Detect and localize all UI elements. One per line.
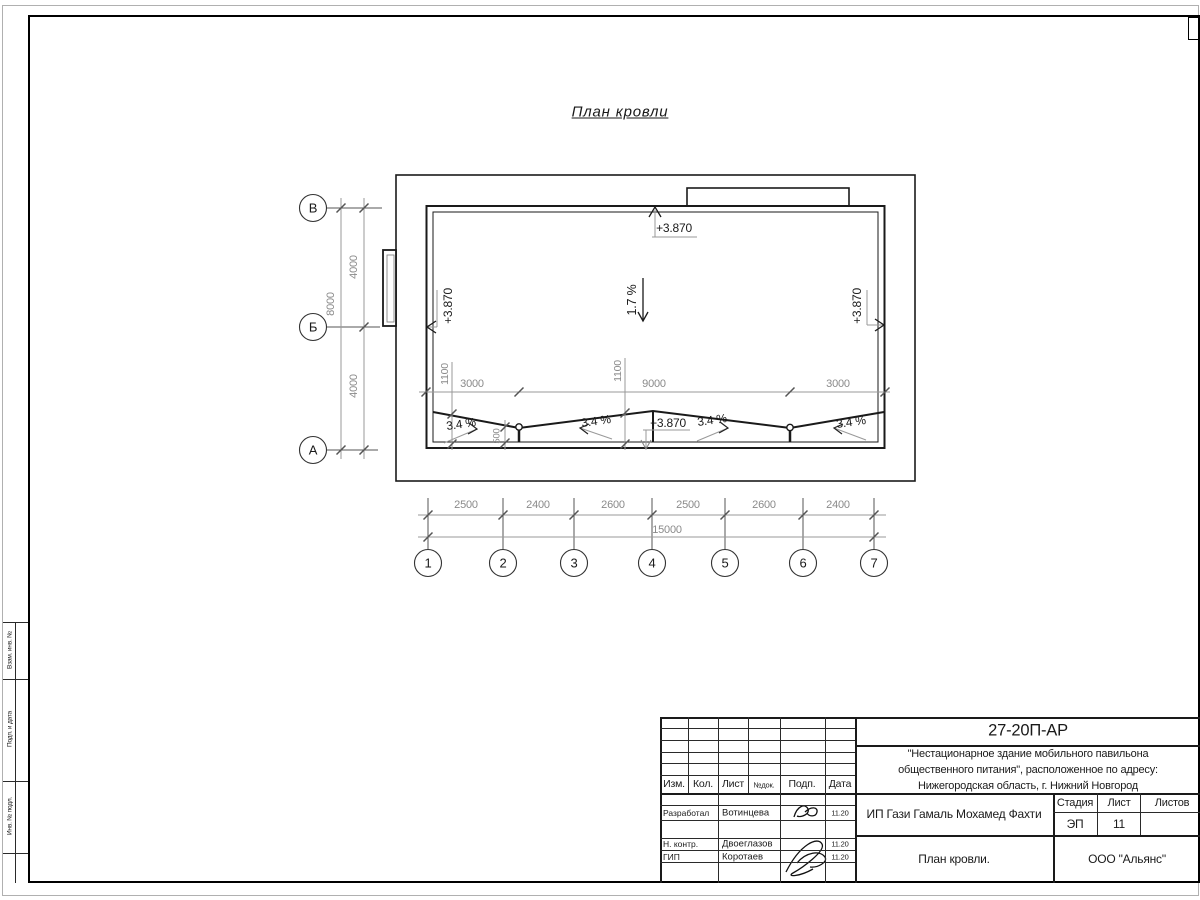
name-developer: Вотинцева [722, 808, 769, 819]
sheet-number: 11 [1113, 817, 1125, 831]
dim-bottom-segment: 2400 [826, 499, 850, 511]
titleblock-line [825, 717, 826, 883]
dim-inner-offset: 1100 [612, 360, 624, 382]
col-header-podp: Подп. [789, 778, 816, 790]
signature-developer [794, 806, 817, 817]
dim-bottom-segment: 2500 [676, 499, 700, 511]
dim-bottom-segment: 2600 [752, 499, 776, 511]
sheets-header: Листов [1155, 797, 1190, 809]
name-ncontrol: Двоеглазов [722, 839, 773, 850]
titleblock-line [855, 745, 1200, 747]
drawing-sheet: Взам. инв. № Подп. и дата Инв. № подл. П… [0, 0, 1200, 900]
role-ncontrol: Н. контр. [663, 839, 698, 849]
dim-drain-offset: 500 [492, 428, 503, 443]
titleblock-line [1140, 793, 1141, 835]
axis-label-7: 7 [870, 556, 877, 571]
date-ncontrol: 11.20 [831, 840, 848, 849]
axis-lines [327, 208, 874, 549]
date-developer: 11.20 [831, 809, 848, 818]
dim-bottom-segment: 2500 [454, 499, 478, 511]
dim-left-segment: 4000 [348, 255, 360, 279]
dim-bottom-segment: 2400 [526, 499, 550, 511]
titleblock-line [855, 717, 857, 883]
col-header-ndoc: №док. [754, 781, 775, 790]
sheet-header: Лист [1107, 797, 1130, 809]
axis-label-4: 4 [648, 556, 655, 571]
signature-approver [786, 841, 826, 876]
axis-label-5: 5 [721, 556, 728, 571]
sheet-title: План кровли. [918, 852, 990, 866]
elevation-right: +3.870 [850, 288, 864, 324]
axis-label-6: 6 [799, 556, 806, 571]
dim-inner-segment: 9000 [642, 378, 666, 390]
titleblock-line [855, 835, 1200, 837]
project-name-line1: "Нестационарное здание мобильного павиль… [908, 748, 1149, 760]
signatures [786, 806, 826, 876]
col-header-kol: Кол. [693, 778, 713, 790]
slope-main: 1.7 % [625, 285, 639, 316]
axis-label-v: В [309, 201, 317, 216]
role-gip: ГИП [663, 852, 680, 862]
elevation-left: +3.870 [441, 288, 455, 324]
dim-left-total: 8000 [325, 292, 337, 316]
stage-value: ЭП [1067, 817, 1084, 831]
elevation-top: +3.870 [656, 221, 692, 235]
axis-label-b: Б [309, 320, 317, 335]
titleblock-line [660, 717, 1200, 719]
role-developer: Разработал [663, 808, 709, 818]
name-gip: Коротаев [722, 852, 763, 863]
col-header-list: Лист [722, 778, 744, 790]
dim-bottom-segment: 2600 [601, 499, 625, 511]
titleblock-line [718, 717, 719, 883]
titleblock-line [1053, 812, 1200, 813]
axis-label-1: 1 [424, 556, 431, 571]
dim-inner-segment: 3000 [826, 378, 850, 390]
company-name: ООО "Альянс" [1088, 852, 1166, 866]
dim-bottom-total: 15000 [652, 524, 682, 536]
titleblock-line [660, 717, 662, 883]
titleblock-line [660, 793, 1200, 795]
axis-label-2: 2 [499, 556, 506, 571]
date-gip: 11.20 [831, 853, 848, 862]
dim-inner-offset: 1100 [439, 363, 451, 385]
dim-left-segment: 4000 [348, 374, 360, 398]
stage-header: Стадия [1057, 797, 1093, 809]
dim-inner-segment: 3000 [460, 378, 484, 390]
elevation-peak: +3.870 [650, 416, 686, 430]
project-name-line2: общественного питания", расположенное по… [898, 764, 1158, 776]
titleblock-line [780, 717, 781, 883]
axis-label-3: 3 [570, 556, 577, 571]
col-header-data: Дата [829, 778, 851, 790]
document-code: 27-20П-АР [988, 722, 1068, 741]
titleblock-line [748, 717, 749, 793]
titleblock-line [1097, 793, 1098, 835]
project-name-line3: Нижегородская область, г. Нижний Новгоро… [918, 780, 1138, 792]
titleblock-line [1053, 793, 1055, 883]
titleblock-line [688, 717, 689, 793]
client-name: ИП Гази Гамаль Мохамед Фахти [867, 807, 1042, 821]
col-header-izm: Изм. [663, 778, 685, 790]
axis-label-a: А [309, 443, 317, 458]
